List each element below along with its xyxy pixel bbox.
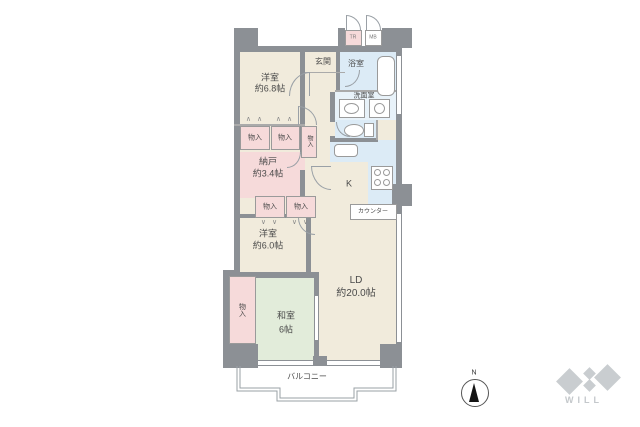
toilet-tank-icon bbox=[364, 123, 374, 137]
floorplan-canvas: ∧ ∧ ∧ ∧ ∨ ∨ ∨ ∨ 洋室 約6.8帖 玄関 浴室 洗面室 納戸 約3… bbox=[0, 0, 640, 427]
door-gap-toilet bbox=[330, 122, 335, 136]
wall-top bbox=[234, 46, 396, 52]
label-entrance: 玄関 bbox=[315, 58, 331, 66]
label-closet-2a: 物入 bbox=[263, 204, 277, 211]
fold-mark-closet1b: ∧ ∧ bbox=[276, 115, 294, 123]
wall-toilet-south bbox=[330, 138, 378, 142]
label-counter: カウンター bbox=[358, 209, 388, 215]
fold-mark-closet2b: ∨ ∨ bbox=[292, 218, 310, 226]
bathtub-icon bbox=[377, 56, 395, 96]
logo-diamond-4 bbox=[594, 364, 621, 391]
label-kitchen: K bbox=[346, 180, 352, 189]
label-balcony: バルコニー bbox=[287, 373, 327, 381]
burner-icon-1 bbox=[374, 169, 381, 176]
wall-left-upper bbox=[234, 46, 240, 276]
label-storage-room-line1: 納戸 bbox=[259, 158, 277, 167]
label-closet-1b: 物入 bbox=[278, 135, 292, 142]
label-japanese-line1: 和室 bbox=[277, 312, 295, 321]
window-ld-east bbox=[396, 214, 402, 342]
door-arc-mb bbox=[366, 15, 381, 30]
line-entrance-step bbox=[305, 72, 345, 73]
wall-top-left-block bbox=[234, 28, 258, 48]
fold-mark-closet1a: ∧ ∧ bbox=[246, 115, 264, 123]
compass-needle-icon bbox=[469, 383, 479, 402]
line-toilet-east bbox=[376, 120, 378, 140]
label-tr: TR bbox=[350, 36, 357, 41]
logo-diamond-1 bbox=[556, 368, 583, 395]
label-storage-room-line2: 約3.4帖 bbox=[253, 170, 284, 179]
label-japanese-line2: 6帖 bbox=[279, 326, 293, 335]
compass-north-label: N bbox=[471, 370, 476, 377]
balcony-outline bbox=[230, 360, 410, 406]
logo-diamond-3 bbox=[583, 379, 596, 392]
burner-icon-2 bbox=[383, 169, 390, 176]
label-mb: MB bbox=[369, 36, 377, 41]
logo-text: WILL bbox=[552, 395, 616, 405]
label-closet-2b: 物入 bbox=[294, 204, 308, 211]
label-west2-line1: 洋室 bbox=[259, 230, 277, 239]
burner-icon-4 bbox=[383, 179, 390, 186]
wall-stub-left-of-tr bbox=[338, 28, 345, 48]
wall-top-right-block bbox=[382, 28, 412, 48]
label-closet-1a: 物入 bbox=[248, 135, 262, 142]
label-ld-line1: LD bbox=[350, 276, 363, 286]
wall-right-mid-block bbox=[392, 184, 412, 206]
washbasin-bowl-icon bbox=[344, 103, 359, 114]
window-bath-east bbox=[396, 56, 402, 114]
washing-machine-drum-icon bbox=[374, 103, 385, 114]
label-ld-line2: 約20.0帖 bbox=[336, 289, 375, 299]
sliding-door-japanese-ld bbox=[314, 296, 319, 340]
fold-mark-closet2a: ∨ ∨ bbox=[261, 218, 279, 226]
burner-icon-3 bbox=[374, 179, 381, 186]
label-closet-1c: 物入 bbox=[306, 135, 312, 147]
label-closet-japanese: 物入 bbox=[239, 303, 246, 317]
label-bath: 浴室 bbox=[348, 60, 364, 68]
label-west1-line1: 洋室 bbox=[261, 74, 279, 83]
label-west1-line2: 約6.8帖 bbox=[255, 85, 286, 94]
door-arc-tr bbox=[346, 15, 361, 30]
kitchen-sink-icon bbox=[334, 144, 358, 157]
label-west2-line2: 約6.0帖 bbox=[253, 242, 284, 251]
label-washroom: 洗面室 bbox=[354, 93, 375, 100]
